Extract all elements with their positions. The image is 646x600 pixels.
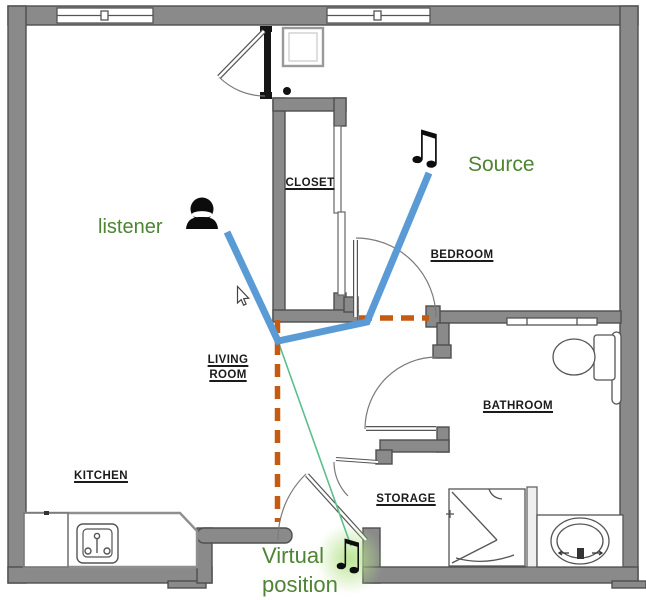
floorplan: [0, 0, 646, 600]
floorplan-diagram: ♫ ♫ CLOSET BEDROOM LIVING ROOM KITCHEN B…: [0, 0, 646, 600]
entry-top-door-leaf: [219, 31, 264, 77]
listener-label: listener: [98, 216, 162, 239]
hall-door-arc: [365, 357, 437, 429]
source-note-icon: ♫: [404, 124, 445, 170]
fridge: [24, 513, 68, 567]
room-label-bedroom: BEDROOM: [431, 249, 494, 261]
source-label: Source: [468, 153, 535, 177]
vestibule-fixture: [283, 28, 323, 95]
kitchen-fixtures: [24, 511, 197, 567]
room-label-kitchen: KITCHEN: [74, 470, 128, 482]
shower-partition: [527, 487, 537, 567]
room-label-storage: STORAGE: [376, 493, 435, 505]
entry-top-door-arc: [219, 77, 265, 96]
toilet: [553, 335, 615, 380]
room-label-living-room: LIVING ROOM: [208, 353, 249, 383]
room-label-bathroom: BATHROOM: [483, 400, 553, 412]
towel-bar: [507, 318, 597, 325]
room-label-closet: CLOSET: [285, 177, 334, 189]
storage-door-leaf: [336, 459, 378, 462]
virtual-position-label: Virtual position: [262, 541, 338, 599]
listener-person-icon: [186, 198, 218, 230]
bathroom-fixtures: [446, 318, 623, 567]
closet-sliding-doors: [334, 126, 345, 295]
vanity-sink: [537, 515, 623, 567]
shower: [446, 489, 525, 566]
storage-door-arc: [334, 462, 348, 496]
door-stop-dot: [283, 87, 291, 95]
vestibule-wall: [260, 26, 272, 99]
bedroom-door-arc: [356, 238, 436, 318]
